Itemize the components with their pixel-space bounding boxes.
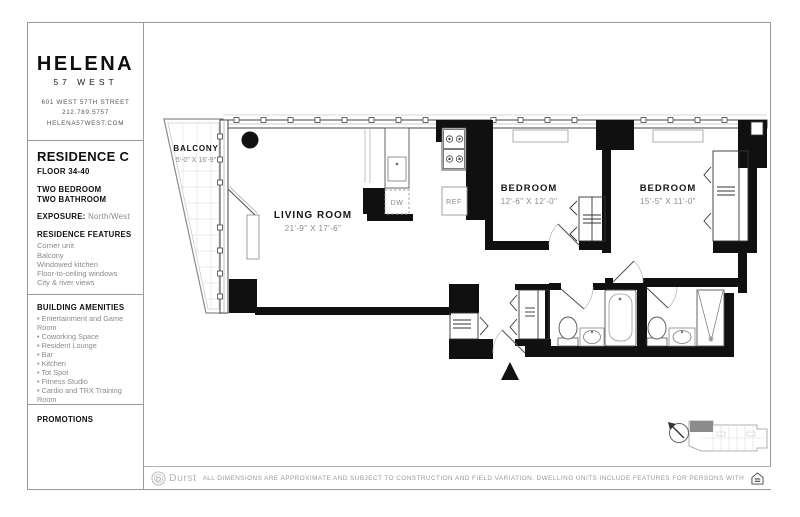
- feature-item: Windowed kitchen: [37, 260, 137, 269]
- wall-cabinet: [247, 215, 259, 259]
- brand-block: HELENA 57 WEST 601 WEST 57TH STREET 212.…: [28, 23, 143, 141]
- exposure-value: North/West: [88, 212, 130, 221]
- sink-faucet: [396, 163, 399, 166]
- toilet: [559, 317, 577, 339]
- living-room-dims: 21'-9" X 17'-6": [285, 224, 342, 233]
- residence-floor: FLOOR 34-40: [37, 167, 137, 176]
- residence-info-section: RESIDENCE C FLOOR 34-40 TWO BEDROOM TWO …: [28, 141, 143, 295]
- bedroom1-door: [558, 224, 579, 245]
- feature-item: Corner unit: [37, 241, 137, 250]
- bedroom2-door: [613, 261, 634, 282]
- brand-website: HELENA57WEST.COM: [28, 119, 143, 129]
- sidebar: HELENA 57 WEST 601 WEST 57TH STREET 212.…: [28, 23, 144, 489]
- amenity-item: Cardio and TRX Training Room: [37, 387, 138, 405]
- shower: [697, 290, 724, 346]
- bedroom2-dims: 15'-5" X 11'-0": [640, 197, 696, 206]
- bedroom2-label: BEDROOM: [640, 183, 697, 194]
- feature-item: City & river views: [37, 278, 137, 287]
- brand-subtitle: 57 WEST: [28, 77, 143, 87]
- bedroom1-dims: 12'-6" X 12'-0": [501, 197, 558, 206]
- promotions-section: PROMOTIONS: [28, 405, 143, 491]
- brand-phone: 212.789.5757: [28, 108, 143, 118]
- features-list: Corner unit Balcony Windowed kitchen Flo…: [37, 241, 137, 287]
- feature-item: Floor-to-ceiling windows: [37, 269, 137, 278]
- durst-logo: D Durst: [151, 471, 197, 486]
- disclaimer-text: ALL DIMENSIONS ARE APPROXIMATE AND SUBJE…: [203, 475, 745, 482]
- promotions-heading: PROMOTIONS: [37, 415, 143, 424]
- amenities-section: BUILDING AMENITIES Entertainment and Gam…: [28, 295, 143, 405]
- residence-config: TWO BEDROOM TWO BATHROOM: [37, 185, 137, 204]
- balcony-label: BALCONY: [173, 144, 218, 153]
- kitchen-sink: [388, 157, 406, 181]
- residence-title: RESIDENCE C: [37, 149, 137, 164]
- dishwasher-label: DW: [391, 200, 404, 207]
- entry-marker: [501, 362, 519, 380]
- bedroom1-label: BEDROOM: [501, 183, 558, 194]
- amenities-heading: BUILDING AMENITIES: [37, 303, 138, 312]
- amenities-list: Entertainment and Game Room Coworking Sp…: [37, 315, 138, 405]
- keyplan: [668, 421, 767, 451]
- structural-column: [242, 132, 259, 149]
- brand-contact: 601 WEST 57TH STREET 212.789.5757 HELENA…: [28, 98, 143, 129]
- window-sill: [653, 130, 703, 142]
- unit-location-highlight: [690, 421, 713, 432]
- bathroom2-door: [647, 288, 668, 308]
- stove: [442, 128, 466, 170]
- balcony-door: [228, 189, 255, 215]
- window-sill: [513, 130, 568, 142]
- brand-name: HELENA: [28, 53, 143, 76]
- linen-closet: [519, 290, 549, 339]
- amenity-item: Entertainment and Game Room: [37, 315, 138, 333]
- balcony-dims: 5'-0" X 16'-9": [176, 157, 217, 164]
- interior-walls: [229, 120, 767, 359]
- feature-item: Balcony: [37, 251, 137, 260]
- living-room-label: LIVING ROOM: [274, 210, 352, 221]
- coat-closet: [450, 313, 478, 339]
- config-bedrooms: TWO BEDROOM: [37, 185, 137, 195]
- exposure-label: EXPOSURE:: [37, 212, 86, 221]
- exposure-row: EXPOSURE: North/West: [37, 212, 137, 221]
- features-heading: RESIDENCE FEATURES: [37, 230, 137, 239]
- living-room: LIVING ROOM 21'-9" X 17'-6": [242, 132, 353, 260]
- floorplan-drawing: BALCONY 5'-0" X 16'-9": [144, 23, 771, 467]
- durst-logo-mark: D: [156, 474, 162, 483]
- brand-address: 601 WEST 57TH STREET: [28, 98, 143, 108]
- equal-housing-icon: [751, 472, 764, 485]
- footer-bar: D Durst ALL DIMENSIONS ARE APPROXIMATE A…: [144, 466, 771, 489]
- bathroom1-door: [561, 289, 584, 309]
- toilet: [648, 317, 666, 339]
- floorplan-sheet: HELENA 57 WEST 601 WEST 57TH STREET 212.…: [0, 0, 800, 517]
- config-bathrooms: TWO BATHROOM: [37, 195, 137, 205]
- balcony: BALCONY 5'-0" X 16'-9": [164, 119, 223, 313]
- durst-logo-icon: D: [151, 471, 166, 486]
- bathroom1: [558, 290, 636, 346]
- refrigerator-label: REF: [446, 199, 462, 206]
- durst-logo-text: Durst: [169, 472, 197, 484]
- content-frame: HELENA 57 WEST 601 WEST 57TH STREET 212.…: [27, 22, 771, 490]
